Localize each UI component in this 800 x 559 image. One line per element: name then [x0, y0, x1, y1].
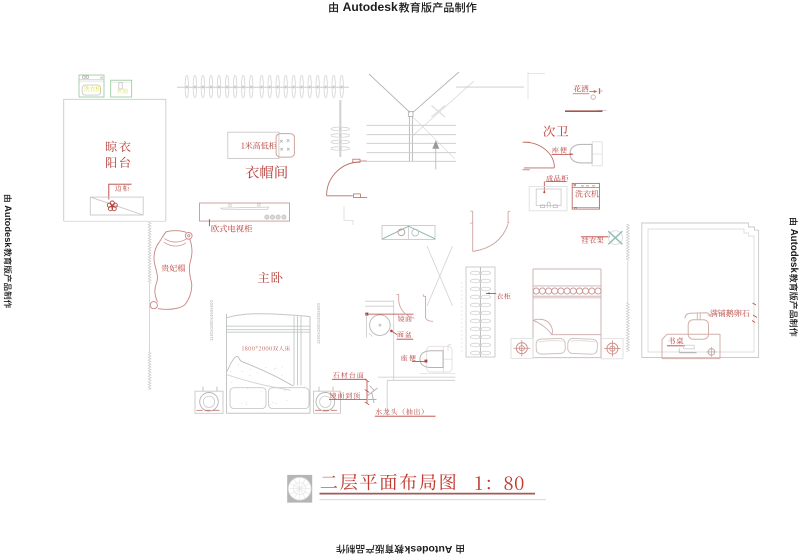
svg-text:Autodesk: Autodesk [404, 543, 452, 555]
svg-text:Autodesk: Autodesk [343, 0, 398, 14]
svg-text:Autodesk: Autodesk [3, 205, 13, 248]
svg-text:1150x1800x450x600: 1150x1800x450x600 [209, 299, 214, 341]
svg-text:1150x1800x450x600: 1150x1800x450x600 [316, 302, 321, 344]
svg-text:Autodesk: Autodesk [788, 229, 799, 274]
